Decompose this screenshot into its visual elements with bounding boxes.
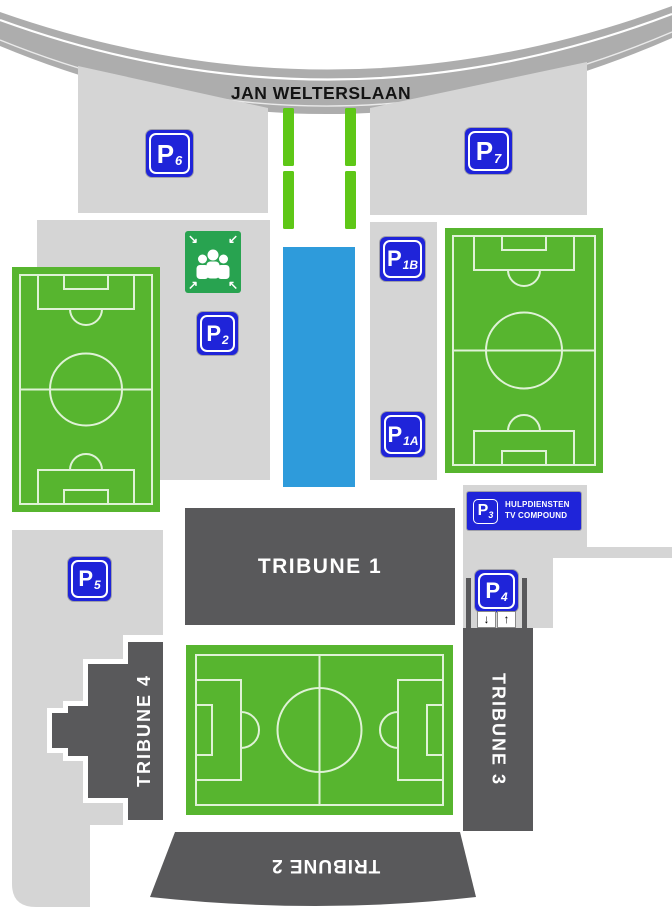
- assembly-arrow-bottom-right-icon: ↖: [228, 279, 238, 291]
- parking-sign-letter: P: [478, 503, 489, 519]
- parking-sign-letter: P: [476, 138, 493, 164]
- p3-annex-text: HULPDIENSTEN TV COMPOUND: [505, 500, 570, 522]
- tribune-2-label: TRIBUNE 2: [175, 832, 476, 898]
- parking-sign-number: 5: [94, 579, 101, 591]
- parking-sign-number: 2: [222, 334, 229, 346]
- tribune-4-label: TRIBUNE 4: [126, 642, 163, 820]
- gate-arrow-up-icon: ↑: [497, 611, 516, 628]
- football-field-right: [445, 228, 603, 473]
- gate-arrow-down-icon: ↓: [477, 611, 496, 628]
- parking-sign-p5: P5: [68, 557, 111, 601]
- football-field-left: [12, 267, 160, 512]
- street-name-label: JAN WELTERSLAAN: [186, 80, 456, 106]
- parking-sign-number: 6: [175, 154, 182, 167]
- p3-annex-line2: TV COMPOUND: [505, 511, 567, 520]
- stadium-area-map: JAN WELTERSLAAN ↘ ↙ ↗ ↖ P6 P7 P2 P1B P1A: [0, 0, 672, 921]
- parking-sign-p1b: P1B: [380, 237, 425, 281]
- parking-sign-number: 1A: [403, 435, 418, 447]
- parking-sign-number: 3: [488, 511, 493, 520]
- assembly-arrow-bottom-left-icon: ↗: [188, 279, 198, 291]
- parking-sign-p4: P4: [475, 570, 518, 612]
- parking-sign-letter: P: [78, 568, 93, 590]
- entrance-lane-markers: [283, 108, 356, 229]
- assembly-arrow-top-right-icon: ↙: [228, 233, 238, 245]
- gate-post-left: [466, 578, 471, 628]
- parking-sign-p2: P2: [197, 312, 238, 355]
- parking-sign-p3-annex: P3 HULPDIENSTEN TV COMPOUND: [467, 492, 581, 530]
- parking-sign-p7: P7: [465, 128, 512, 174]
- tribune-1-label: TRIBUNE 1: [185, 508, 455, 625]
- parking-sign-p1a: P1A: [381, 412, 425, 457]
- parking-sign-letter: P: [387, 248, 402, 270]
- water-canal: [283, 247, 355, 487]
- assembly-point-icon: ↘ ↙ ↗ ↖: [185, 231, 241, 293]
- parking-sign-number: 1B: [403, 259, 418, 271]
- assembly-arrow-top-left-icon: ↘: [188, 233, 198, 245]
- stadium-pitch: [186, 645, 453, 815]
- tribune-3-label: TRIBUNE 3: [463, 628, 533, 831]
- p3-annex-line1: HULPDIENSTEN: [505, 500, 570, 509]
- parking-sign-number: 4: [501, 591, 508, 603]
- parking-sign-p6: P6: [146, 130, 193, 177]
- map-base-layer: [0, 0, 672, 921]
- parking-sign-p3: P3: [471, 497, 500, 526]
- gate-post-right: [522, 578, 527, 628]
- parking-sign-letter: P: [157, 141, 174, 167]
- parking-sign-number: 7: [494, 152, 501, 165]
- parking-sign-letter: P: [485, 580, 500, 602]
- parking-sign-letter: P: [387, 424, 402, 446]
- parking-sign-letter: P: [206, 323, 221, 345]
